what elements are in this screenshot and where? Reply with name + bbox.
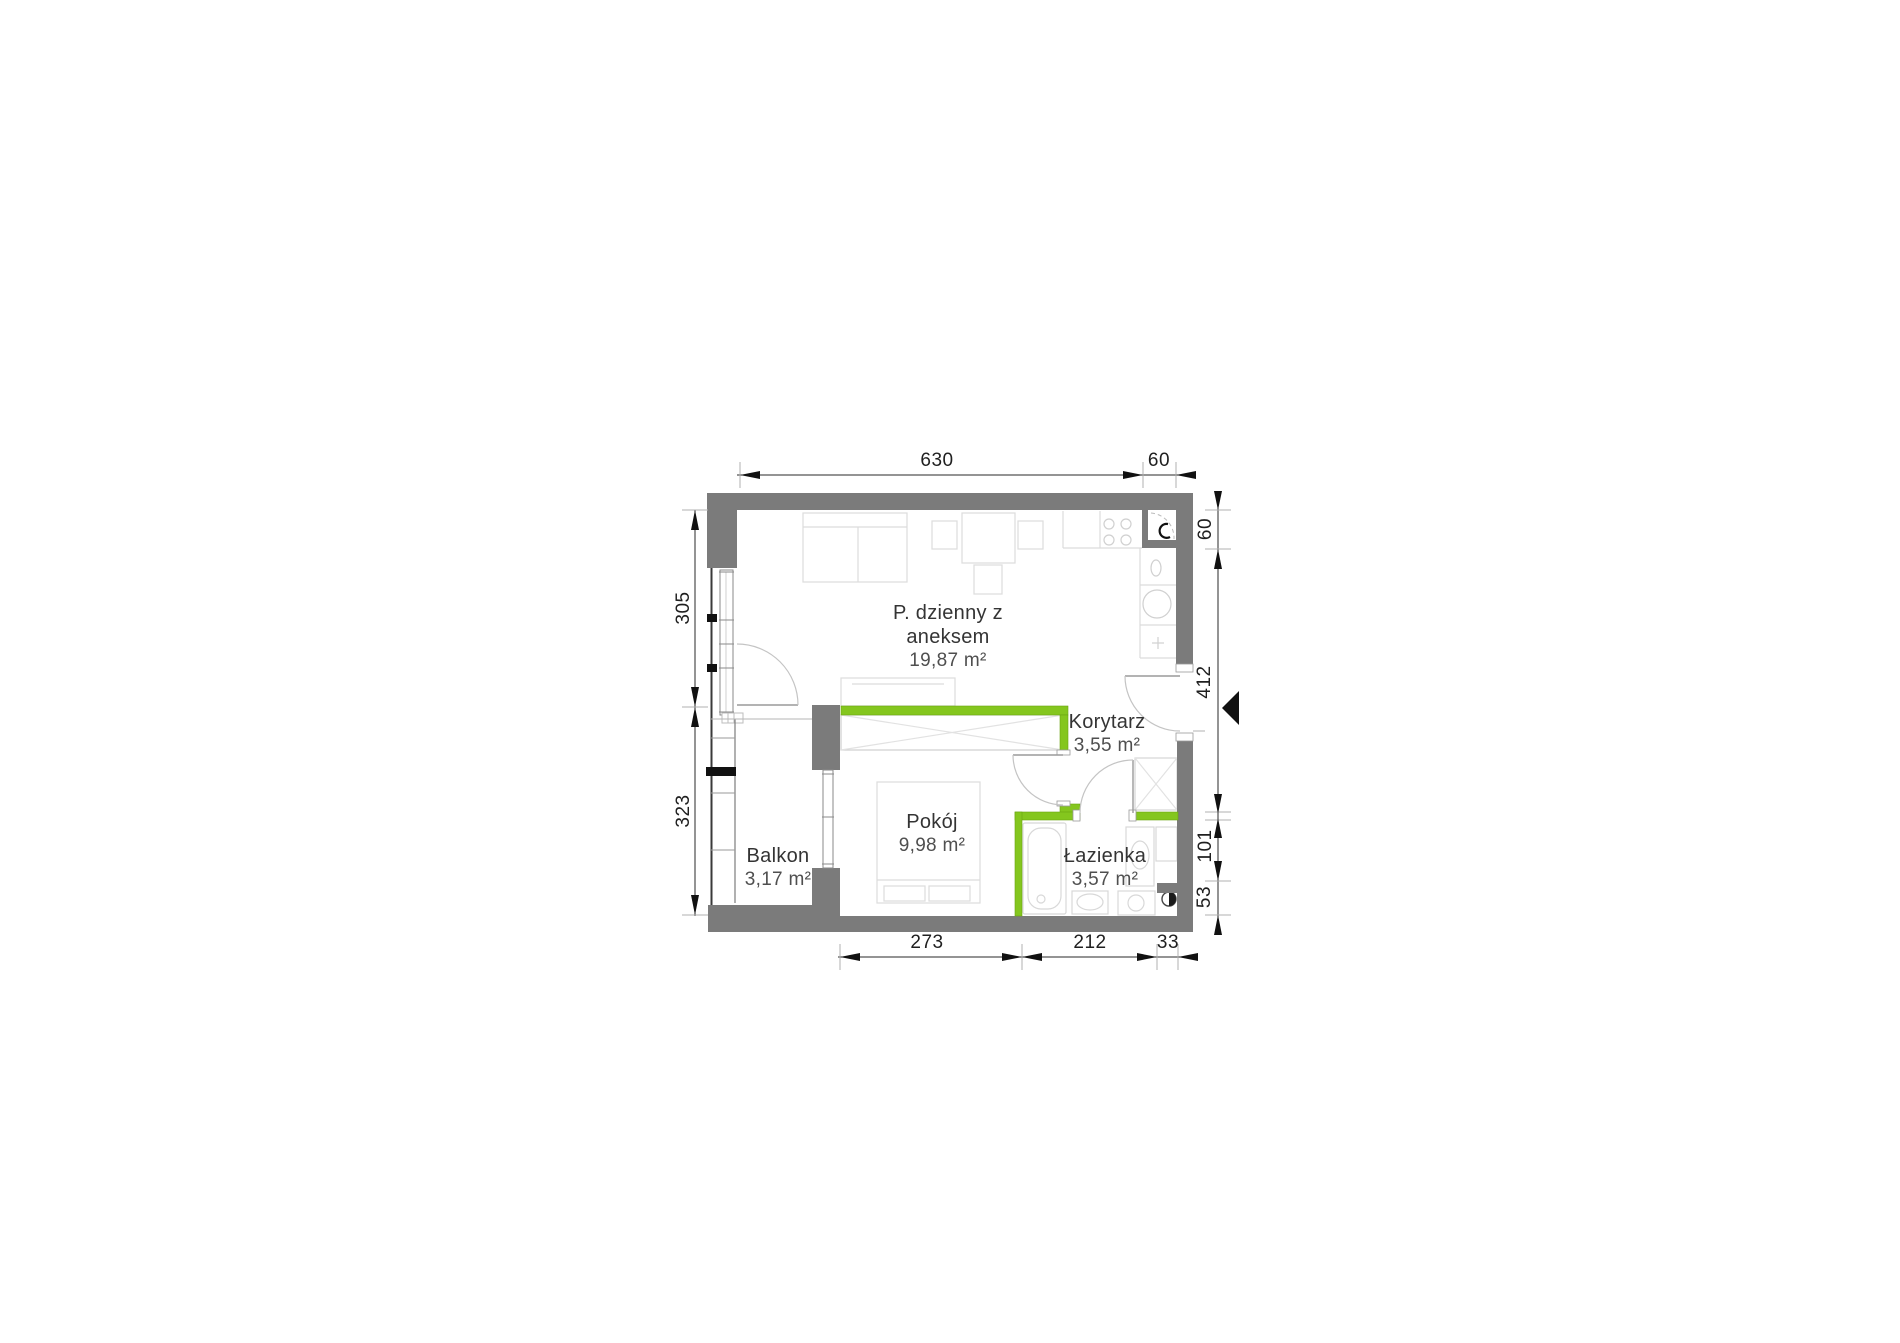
drain-cross (1152, 637, 1164, 649)
sofa (803, 513, 907, 582)
green-wall-bath-top-right (1133, 812, 1178, 820)
wall-toilet-stub (1157, 883, 1180, 893)
room-name-line1: P. dzienny z (893, 601, 1003, 625)
dim-label-bottom-273: 273 (910, 932, 943, 954)
wall-right-lower (1177, 733, 1193, 932)
window-left (719, 570, 734, 715)
dim-label-top-60: 60 (1148, 450, 1170, 472)
wall-balcony-divider-upper (812, 705, 840, 770)
wall-balcony-divider-lower (812, 868, 840, 917)
dim-label-right-412: 412 (1194, 665, 1216, 698)
chair-right (1018, 521, 1043, 549)
window-frame (720, 570, 733, 715)
room-name: Korytarz (1069, 710, 1146, 734)
room-name: Łazienka (1064, 844, 1146, 868)
dim-label-left-305: 305 (673, 591, 695, 624)
entrance-triangle-icon (1222, 691, 1239, 725)
green-wall-pokoj-right (1060, 715, 1068, 752)
dim-label-right-53: 53 (1194, 886, 1216, 908)
wall-bottom (720, 916, 1193, 932)
balcony-slab-edge (708, 905, 823, 918)
pillow-right (929, 886, 970, 901)
green-wall-pokoj-top (841, 706, 1068, 715)
jamb-bath-left (1073, 810, 1080, 821)
dim-label-right-60: 60 (1195, 518, 1217, 540)
green-wall-pokoj-bath-divider (1015, 812, 1022, 916)
shaft-valve-glyph (1160, 524, 1170, 538)
jamb-entry-top (1176, 664, 1193, 672)
dim-label-right-101: 101 (1195, 829, 1217, 862)
wall-left-upper (707, 493, 737, 568)
railing-post-2 (707, 664, 717, 672)
room-area: 3,17 m² (745, 868, 812, 892)
dim-label-bottom-33: 33 (1157, 932, 1179, 954)
green-wall-bath-top-left (1015, 812, 1080, 820)
balcony-slab-corner (708, 905, 720, 932)
room-area: 19,87 m² (893, 649, 1003, 673)
door-bathroom (1080, 760, 1133, 813)
dim-label-left-323: 323 (673, 794, 695, 827)
pillow-left (884, 886, 925, 901)
room-label-pokoj: Pokój 9,98 m² (899, 810, 966, 858)
balcony-threshold (722, 713, 743, 723)
wall-shaft-bottom (1142, 540, 1178, 548)
room-area: 3,55 m² (1069, 734, 1146, 758)
door-pokoj (1013, 755, 1063, 805)
railing-panel-joints (711, 738, 735, 850)
room-label-balkon: Balkon 3,17 m² (745, 844, 812, 892)
railing-post-1 (707, 614, 717, 622)
room-name: Balkon (745, 844, 812, 868)
kitchen-faucet (1151, 560, 1161, 576)
sewage-riser-half (1169, 892, 1176, 906)
room-name-line2: aneksem (893, 625, 1003, 649)
cooktop (1104, 519, 1131, 545)
door-balcony (737, 644, 798, 705)
window-balcony-pokoj (822, 770, 834, 868)
room-area: 3,57 m² (1064, 868, 1146, 892)
dim-label-top-630: 630 (920, 450, 953, 472)
threshold (722, 713, 743, 723)
bath-cabinet (1156, 827, 1177, 861)
room-label-lazienka: Łazienka 3,57 m² (1064, 844, 1146, 892)
dining-table (962, 513, 1015, 563)
railing-post-3 (706, 767, 736, 776)
room-label-korytarz: Korytarz 3,55 m² (1069, 710, 1146, 758)
wall-right-upper (1176, 493, 1193, 670)
sideboard (841, 678, 955, 706)
wall-top (707, 493, 1193, 510)
room-name: Pokój (899, 810, 966, 834)
chair-bottom (974, 565, 1002, 594)
kitchen-sink (1143, 590, 1171, 618)
chair-left (932, 521, 957, 549)
room-area: 9,98 m² (899, 834, 966, 858)
room-label-living: P. dzienny z aneksem 19,87 m² (893, 601, 1003, 673)
floor-plan-page: P. dzienny z aneksem 19,87 m² Korytarz 3… (0, 0, 1900, 1343)
window2-frame (823, 770, 833, 868)
dim-label-bottom-212: 212 (1073, 932, 1106, 954)
jamb-entry-bottom (1176, 733, 1193, 741)
